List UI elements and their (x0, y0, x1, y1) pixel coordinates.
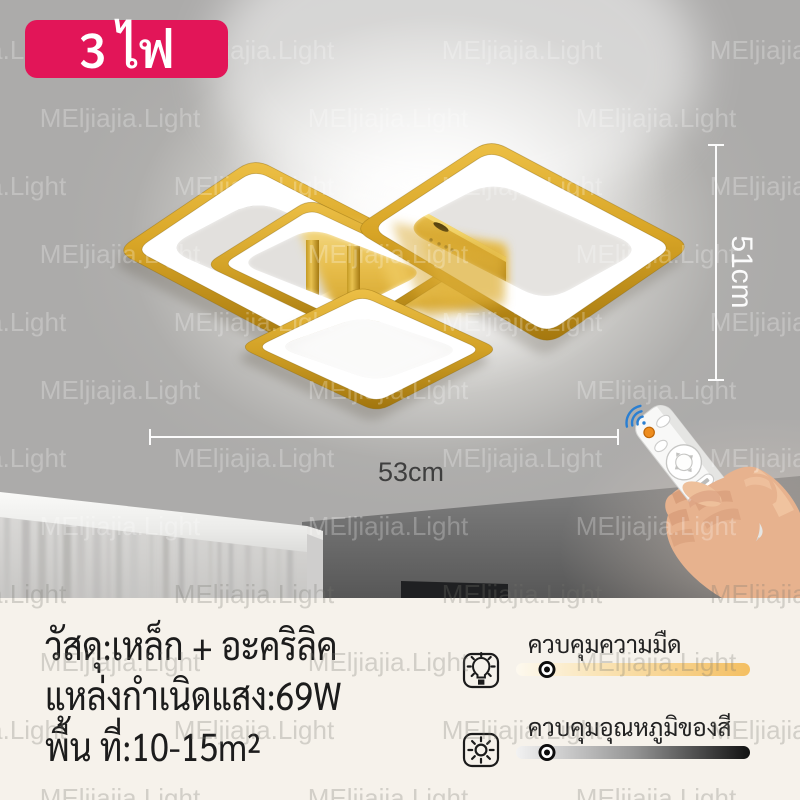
svg-text:MEljiajia.Light: MEljiajia.Light (40, 647, 201, 677)
svg-text:MEljiajia.Light: MEljiajia.Light (40, 375, 201, 405)
svg-text:MEljiajia.Light: MEljiajia.Light (174, 715, 335, 745)
svg-text:MEljiajia.Light: MEljiajia.Light (442, 35, 603, 65)
svg-text:MEljiajia.Light: MEljiajia.Light (0, 171, 67, 201)
svg-text:MEljiajia.Light: MEljiajia.Light (442, 443, 603, 473)
svg-text:MEljiajia.Light: MEljiajia.Light (576, 783, 737, 800)
svg-text:MEljiajia.Light: MEljiajia.Light (40, 239, 201, 269)
svg-text:MEljiajia.Light: MEljiajia.Light (710, 307, 800, 337)
svg-text:MEljiajia.Light: MEljiajia.Light (174, 307, 335, 337)
svg-text:MEljiajia.Light: MEljiajia.Light (308, 783, 469, 800)
svg-text:MEljiajia.Light: MEljiajia.Light (308, 239, 469, 269)
svg-text:MEljiajia.Light: MEljiajia.Light (576, 647, 737, 677)
svg-text:MEljiajia.Light: MEljiajia.Light (576, 103, 737, 133)
svg-text:MEljiajia.Light: MEljiajia.Light (576, 239, 737, 269)
svg-text:MEljiajia.Light: MEljiajia.Light (710, 579, 800, 609)
svg-text:MEljiajia.Light: MEljiajia.Light (40, 103, 201, 133)
svg-text:MEljiajia.Light: MEljiajia.Light (0, 443, 67, 473)
svg-text:MEljiajia.Light: MEljiajia.Light (710, 171, 800, 201)
svg-text:MEljiajia.Light: MEljiajia.Light (0, 579, 67, 609)
svg-text:MEljiajia.Light: MEljiajia.Light (174, 443, 335, 473)
svg-text:MEljiajia.Light: MEljiajia.Light (710, 35, 800, 65)
svg-text:MEljiajia.Light: MEljiajia.Light (576, 511, 737, 541)
svg-text:MEljiajia.Light: MEljiajia.Light (0, 307, 67, 337)
svg-text:MEljiajia.Light: MEljiajia.Light (442, 715, 603, 745)
svg-text:MEljiajia.Light: MEljiajia.Light (442, 579, 603, 609)
svg-text:MEljiajia.Light: MEljiajia.Light (442, 307, 603, 337)
svg-text:MEljiajia.Light: MEljiajia.Light (40, 783, 201, 800)
svg-text:MEljiajia.Light: MEljiajia.Light (308, 375, 469, 405)
svg-text:53cm: 53cm (378, 457, 444, 487)
svg-text:MEljiajia.Light: MEljiajia.Light (174, 171, 335, 201)
svg-text:MEljiajia.Light: MEljiajia.Light (308, 103, 469, 133)
svg-text:MEljiajia.Light: MEljiajia.Light (308, 511, 469, 541)
svg-text:MEljiajia.Light: MEljiajia.Light (576, 375, 737, 405)
svg-text:MEljiajia.Light: MEljiajia.Light (442, 171, 603, 201)
svg-text:MEljiajia.Light: MEljiajia.Light (174, 579, 335, 609)
svg-text:MEljiajia.Light: MEljiajia.Light (40, 511, 201, 541)
svg-text:MEljiajia.Light: MEljiajia.Light (710, 715, 800, 745)
svg-text:MEljiajia.Light: MEljiajia.Light (710, 443, 800, 473)
svg-text:MEljiajia.Light: MEljiajia.Light (308, 647, 469, 677)
svg-text:MEljiajia.Light: MEljiajia.Light (0, 715, 67, 745)
